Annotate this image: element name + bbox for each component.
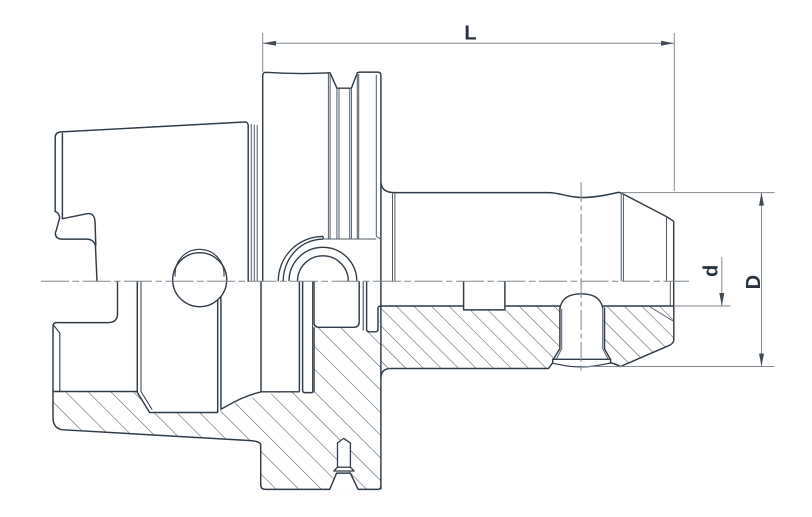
svg-text:D: D xyxy=(743,275,765,289)
svg-text:d: d xyxy=(701,265,723,277)
svg-text:L: L xyxy=(464,23,476,45)
